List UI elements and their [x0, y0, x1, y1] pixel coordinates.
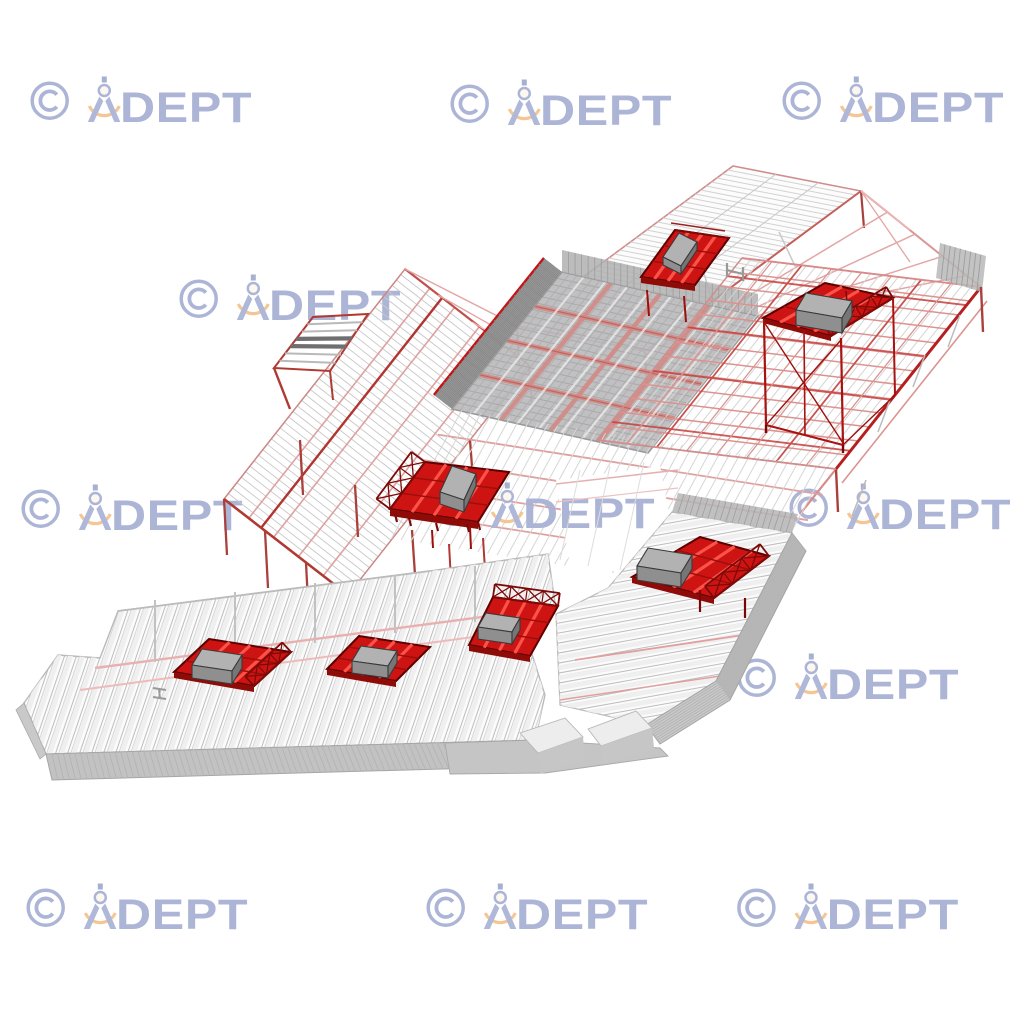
- svg-text:DEPT: DEPT: [120, 83, 252, 132]
- svg-text:DEPT: DEPT: [827, 660, 959, 709]
- svg-text:DEPT: DEPT: [872, 83, 1004, 132]
- svg-text:DEPT: DEPT: [879, 490, 1011, 539]
- svg-text:DEPT: DEPT: [269, 281, 401, 330]
- svg-text:DEPT: DEPT: [516, 890, 648, 939]
- svg-text:DEPT: DEPT: [523, 489, 655, 538]
- svg-text:DEPT: DEPT: [116, 890, 248, 939]
- svg-text:DEPT: DEPT: [540, 86, 672, 135]
- svg-text:DEPT: DEPT: [111, 491, 243, 540]
- svg-text:DEPT: DEPT: [827, 890, 959, 939]
